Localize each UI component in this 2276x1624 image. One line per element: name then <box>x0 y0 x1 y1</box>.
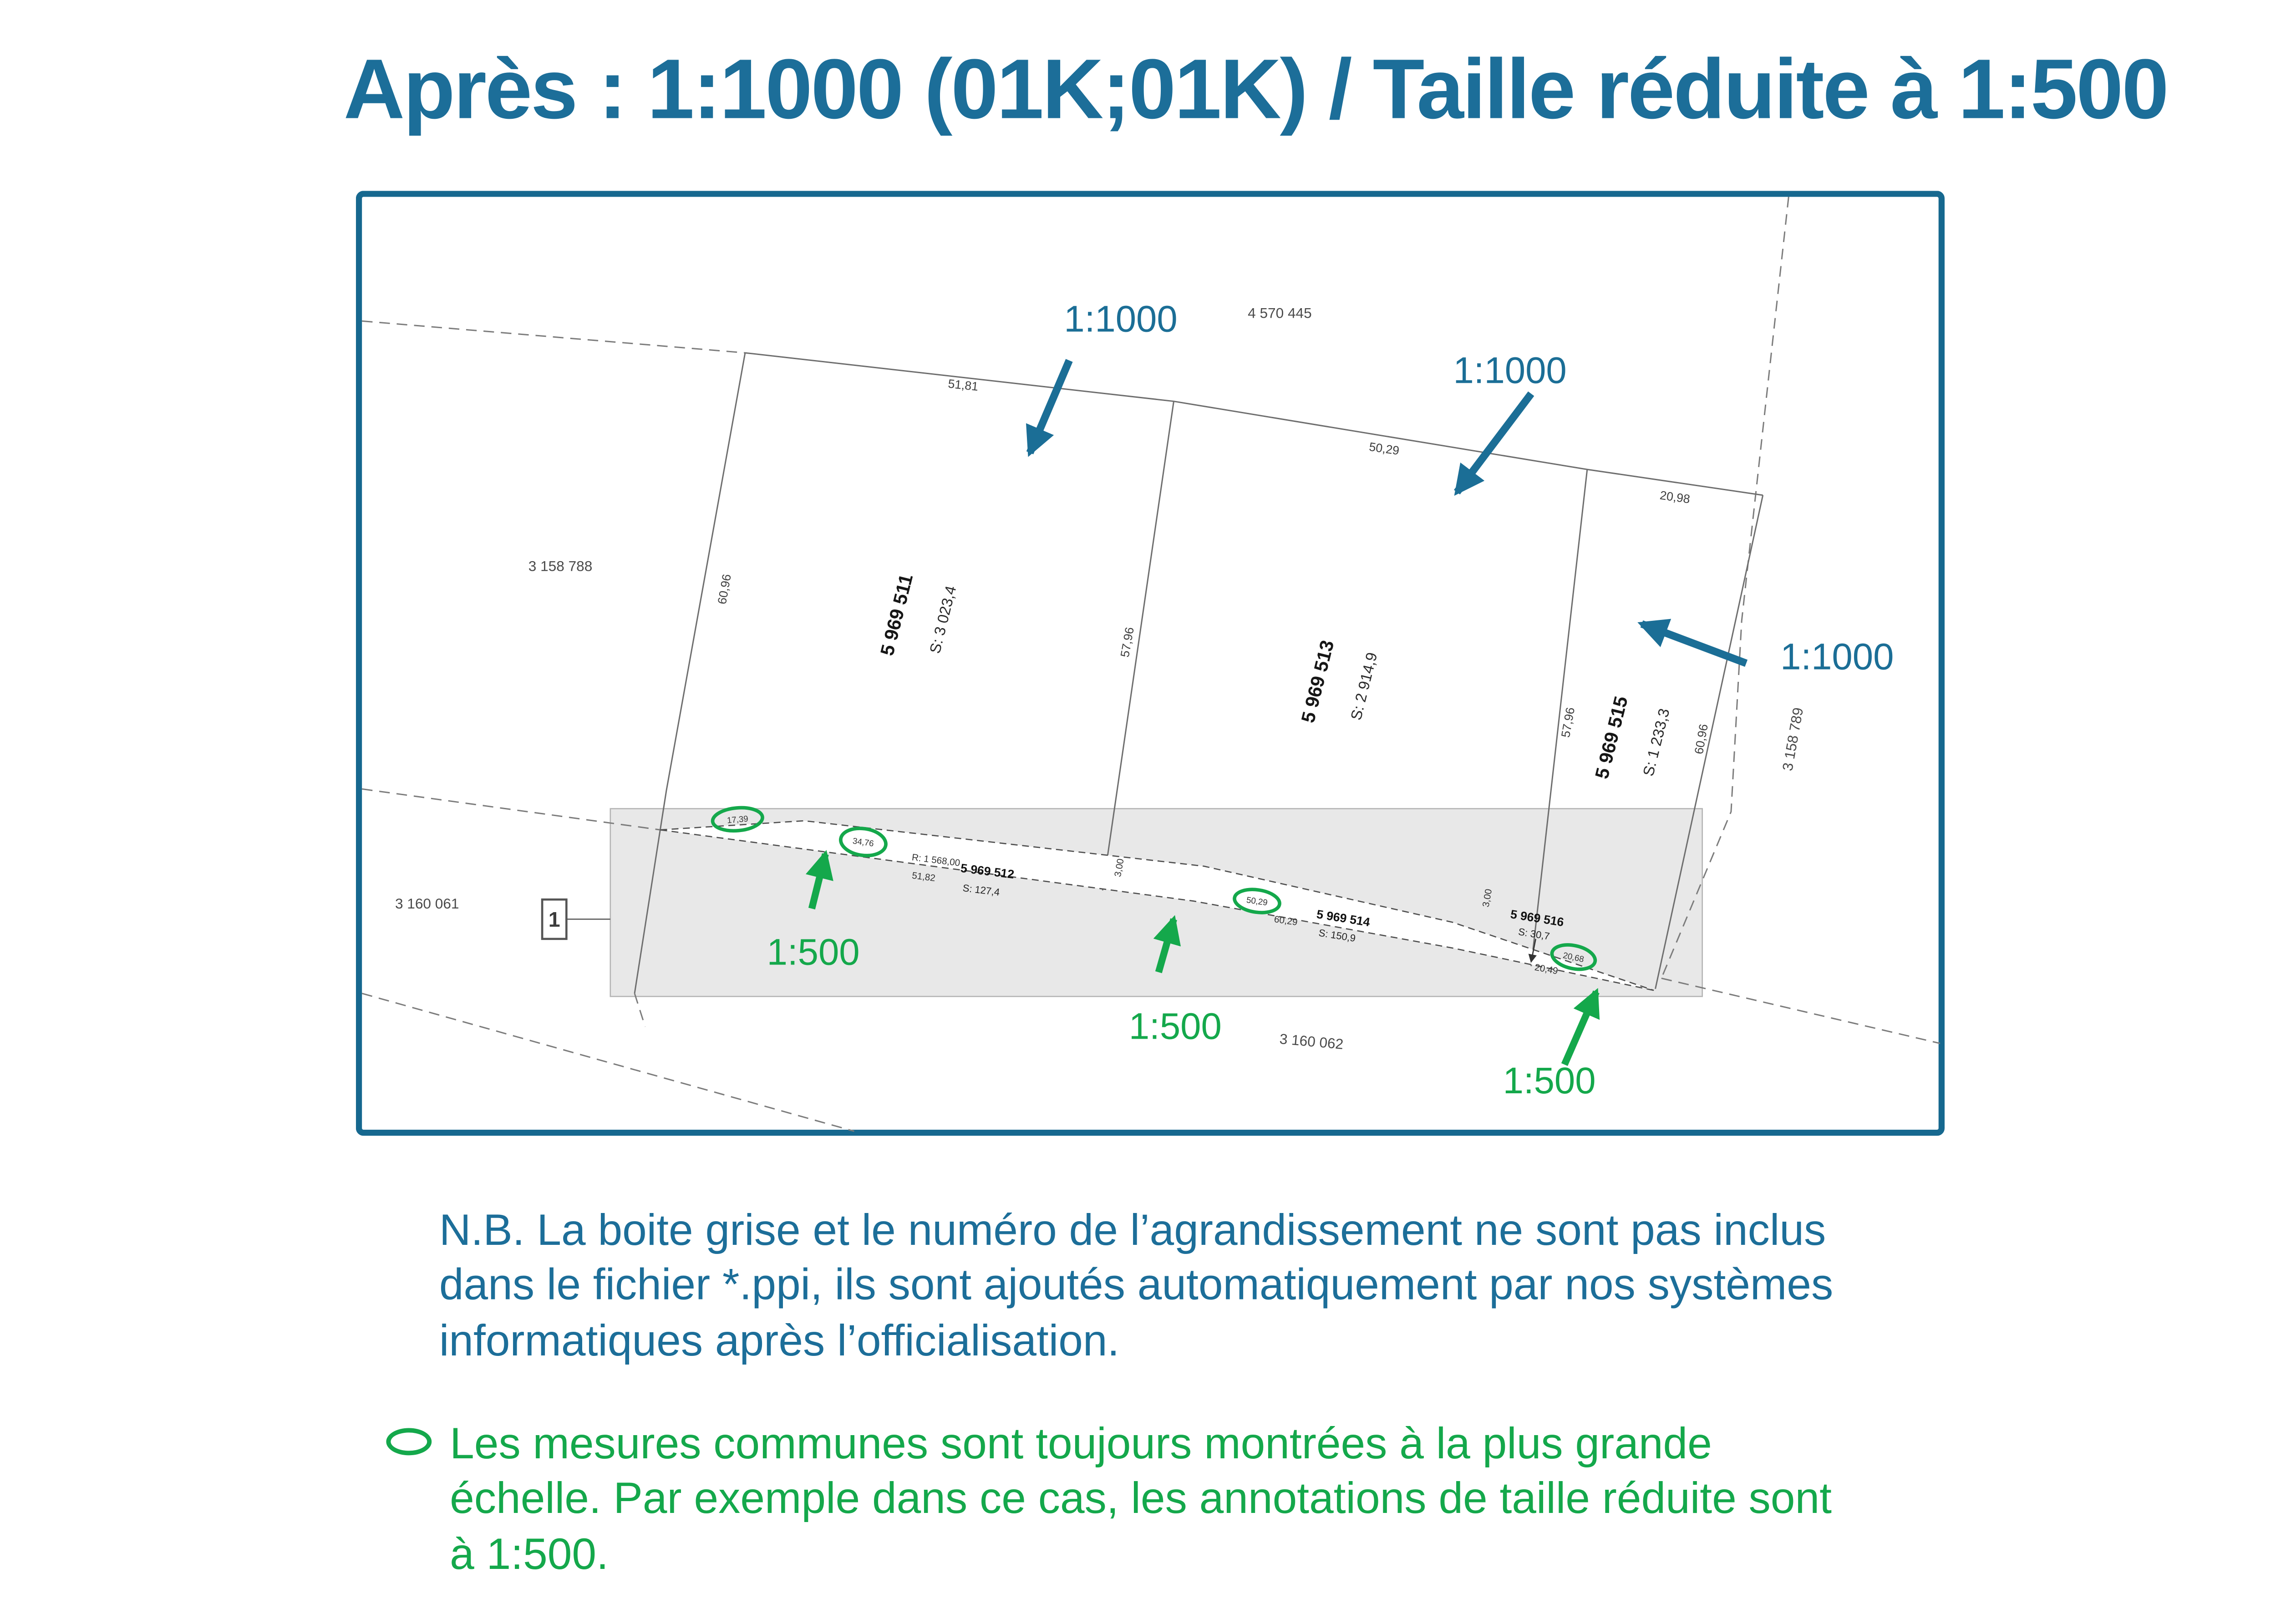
cadastral-map-frame: 1 4 570 445 3 158 788 3 160 061 3 160 06… <box>356 191 1945 1136</box>
parcel-3158788: 3 158 788 <box>528 558 593 574</box>
label-1000-1: 1:1000 <box>1064 299 1177 340</box>
bullet-line-1: Les mesures communes sont toujours montr… <box>450 1417 1941 1472</box>
label-1000-3: 1:1000 <box>1780 636 1894 678</box>
parcel-3160061: 3 160 061 <box>395 895 459 912</box>
bullet-line-2: échelle. Par exemple dans ce cas, les an… <box>450 1472 1941 1528</box>
label-500-2: 1:500 <box>1129 1005 1222 1047</box>
enlargement-marker-label: 1 <box>549 908 560 931</box>
strip-17-39: 17,39 <box>726 814 748 825</box>
label-1000-2: 1:1000 <box>1453 350 1566 391</box>
cadastral-map: 1 4 570 445 3 158 788 3 160 061 3 160 06… <box>356 191 1945 1136</box>
label-500-1: 1:500 <box>767 931 860 973</box>
slide-title: Après : 1:1000 (01K;01K) / Taille réduit… <box>168 40 2276 138</box>
label-500-3: 1:500 <box>1503 1060 1596 1101</box>
nb-line-3: informatiques après l’officialisation. <box>439 1314 1954 1369</box>
bullet-line-3: à 1:500. <box>450 1528 1941 1583</box>
oval-bullet-icon <box>386 1428 432 1455</box>
parcel-4570445: 4 570 445 <box>1248 305 1312 321</box>
nb-note: N.B. La boite grise et le numéro de l’ag… <box>439 1204 1954 1369</box>
nb-line-2: dans le fichier *.ppi, ils sont ajoutés … <box>439 1259 1954 1314</box>
slide: Après : 1:1000 (01K;01K) / Taille réduit… <box>0 0 2276 1624</box>
enlargement-marker: 1 <box>542 899 566 939</box>
bullet-note: Les mesures communes sont toujours montr… <box>381 1417 1941 1583</box>
nb-line-1: N.B. La boite grise et le numéro de l’ag… <box>439 1204 1954 1259</box>
